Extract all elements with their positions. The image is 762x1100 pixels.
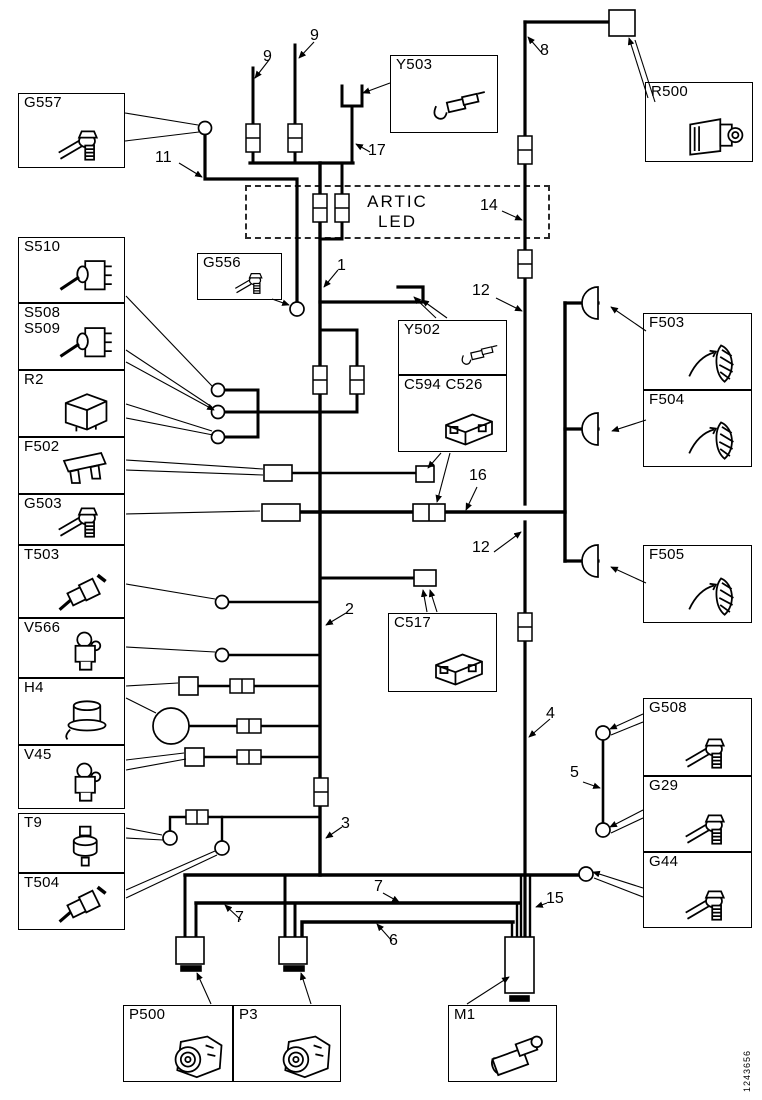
wiring-diagram-canvas: G557S510S508S509R2F502G503T503V566H4V45T… [0, 0, 762, 1100]
component-label-line: G557 [24, 95, 62, 111]
component-box-r2: R2 [18, 370, 125, 437]
component-label-line: R500 [651, 84, 688, 100]
component-label: G29 [649, 778, 678, 794]
wire-number-label: 8 [540, 43, 549, 59]
wire-number-label: 7 [374, 879, 383, 895]
component-label-line: T9 [24, 815, 42, 831]
component-box-g557: G557 [18, 93, 125, 168]
component-label: P500 [129, 1007, 165, 1023]
component-box-p500: P500 [123, 1005, 233, 1082]
print-number: 1243656 [742, 1050, 752, 1092]
component-label-line: G508 [649, 700, 687, 716]
wire-number-label: 7 [235, 910, 244, 926]
component-box-f502: F502 [18, 437, 125, 494]
component-label-line: F505 [649, 547, 684, 563]
harness-wires [170, 22, 609, 937]
component-label-line: F504 [649, 392, 684, 408]
lamp-icon [680, 341, 748, 387]
component-label-line: R2 [24, 372, 44, 388]
note-line: LED [378, 212, 417, 232]
component-box-g556: G556 [197, 253, 282, 300]
toggle-switch-icon [53, 254, 121, 300]
component-label: F503 [649, 315, 684, 331]
wire-number-label: 17 [368, 143, 386, 159]
ground-terminal-icon [680, 727, 748, 773]
wire-to-y502 [320, 287, 423, 302]
valve-icon [53, 760, 121, 806]
component-box-c517: C517 [388, 613, 497, 692]
component-label: F505 [649, 547, 684, 563]
wire-17-end [342, 86, 362, 106]
component-box-p3: P3 [233, 1005, 341, 1082]
component-leaders [125, 38, 655, 1004]
component-label: G44 [649, 854, 678, 870]
wire-number-label: 15 [546, 891, 564, 907]
component-box-y503: Y503 [390, 55, 498, 133]
wire-number-label: 1 [337, 258, 346, 274]
ground-terminal-icon [232, 265, 278, 297]
component-label-line: H4 [24, 680, 44, 696]
component-box-r500: R500 [645, 82, 753, 162]
component-box-g503: G503 [18, 494, 125, 545]
ground-terminal-icon [53, 119, 121, 165]
lamp-icon [680, 574, 748, 620]
lamp-icon [680, 418, 748, 464]
component-label: S510 [24, 239, 60, 255]
temp-sensor-icon [53, 569, 121, 615]
component-label-line: C594 C526 [404, 377, 483, 393]
component-label-line: S508 [24, 305, 60, 321]
component-box-g44: G44 [643, 852, 752, 928]
wire-number-leaders [179, 37, 600, 941]
ground-terminal-icon [53, 496, 121, 542]
component-box-t503: T503 [18, 545, 125, 618]
component-label: F504 [649, 392, 684, 408]
wire-number-label: 9 [310, 28, 319, 44]
pressure-sensor-icon [53, 824, 121, 870]
component-box-f503: F503 [643, 313, 752, 390]
component-box-s510: S510 [18, 237, 125, 303]
left-branch-rows [170, 602, 320, 841]
component-label-line: F503 [649, 315, 684, 331]
r500-connector [609, 10, 635, 36]
component-label-line: G29 [649, 778, 678, 794]
component-box-y502: Y502 [398, 320, 507, 375]
component-box-h4: H4 [18, 678, 125, 745]
lamp-symbols [582, 287, 598, 577]
temp-sensor-icon [53, 881, 121, 927]
component-box-v566: V566 [18, 618, 125, 678]
component-box-f505: F505 [643, 545, 752, 623]
component-label-line: S510 [24, 239, 60, 255]
starter-motor-icon [485, 1033, 553, 1079]
connector-housing-icon [435, 403, 503, 449]
component-box-g29: G29 [643, 776, 752, 852]
component-label-line: V45 [24, 747, 52, 763]
component-label: T503 [24, 547, 59, 563]
wire-number-label: 4 [546, 706, 555, 722]
artic-led-note-box: ARTIC LED [245, 185, 550, 239]
wire-number-label: 11 [155, 150, 172, 166]
component-label: Y502 [404, 322, 440, 338]
connector-blocks [176, 10, 635, 1001]
alternator-icon [161, 1033, 229, 1079]
component-label-line: C517 [394, 615, 431, 631]
component-label-line: T503 [24, 547, 59, 563]
component-label: G508 [649, 700, 687, 716]
component-label-line: Y503 [396, 57, 432, 73]
connector-pin-icon [426, 84, 494, 130]
ground-terminal-icon [680, 803, 748, 849]
component-label: G557 [24, 95, 62, 111]
component-label-line: Y502 [404, 322, 440, 338]
wire-number-label: 3 [341, 816, 350, 832]
component-box-v45: V45 [18, 745, 125, 809]
component-box-s508-s509: S508S509 [18, 303, 125, 370]
component-box-c594-c526: C594 C526 [398, 375, 507, 452]
component-box-f504: F504 [643, 390, 752, 467]
valve-icon [53, 629, 121, 675]
component-box-g508: G508 [643, 698, 752, 776]
p500-connector-block [176, 937, 204, 964]
m1-connector-block [505, 937, 534, 993]
relay-large-icon [681, 113, 749, 159]
connector-pin-icon [457, 340, 503, 372]
component-label: Y503 [396, 57, 432, 73]
note-line: ARTIC [367, 192, 428, 212]
component-label: C594 C526 [404, 377, 483, 393]
wire-number-label: 14 [480, 198, 498, 214]
wire-number-label: 12 [472, 283, 490, 299]
connector-housing-icon [425, 643, 493, 689]
component-label: T9 [24, 815, 42, 831]
wire-number-label: 16 [469, 468, 487, 484]
ground-terminal-icon [680, 879, 748, 925]
component-label: R2 [24, 372, 44, 388]
component-label: V45 [24, 747, 52, 763]
relay-icon [53, 388, 121, 434]
component-label: M1 [454, 1007, 475, 1023]
component-label: H4 [24, 680, 44, 696]
wire-number-label: 12 [472, 540, 490, 556]
component-box-t9: T9 [18, 813, 125, 873]
component-box-m1: M1 [448, 1005, 557, 1082]
toggle-switch-icon [53, 321, 121, 367]
component-label: P3 [239, 1007, 258, 1023]
wire-number-label: 2 [345, 602, 354, 618]
lamp-bus [565, 303, 598, 561]
component-label: C517 [394, 615, 431, 631]
component-label-line: P3 [239, 1007, 258, 1023]
wire-8-12-4-15 [525, 22, 609, 937]
component-label-line: P500 [129, 1007, 165, 1023]
component-label-line: M1 [454, 1007, 475, 1023]
wire-number-label: 5 [570, 765, 579, 781]
middle-branches [224, 287, 565, 578]
horn-icon [53, 696, 121, 742]
component-label: R500 [651, 84, 688, 100]
fuse-icon [53, 445, 121, 491]
p3-connector-block [279, 937, 307, 964]
alternator-icon [269, 1033, 337, 1079]
wire-number-label: 6 [389, 933, 398, 949]
component-box-t504: T504 [18, 873, 125, 930]
component-label-line: G44 [649, 854, 678, 870]
horn-junction-circle [153, 708, 189, 744]
wire-number-label: 9 [263, 49, 272, 65]
bus-6 [302, 922, 513, 937]
